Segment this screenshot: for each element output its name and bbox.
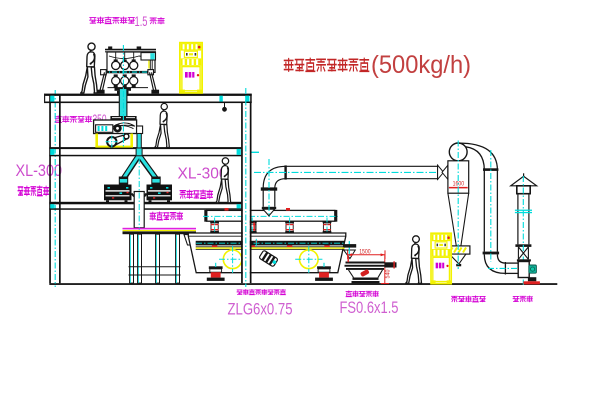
svg-text:1.5: 1.5 xyxy=(135,13,148,29)
svg-text:1500: 1500 xyxy=(359,250,371,256)
svg-text:(500kg/h): (500kg/h) xyxy=(371,51,471,79)
svg-text:XL-300: XL-300 xyxy=(178,166,228,183)
svg-text:540: 540 xyxy=(386,269,392,279)
svg-text:ZLG6x0.75: ZLG6x0.75 xyxy=(228,300,293,319)
svg-text:FS0.6x1.5: FS0.6x1.5 xyxy=(340,298,399,317)
